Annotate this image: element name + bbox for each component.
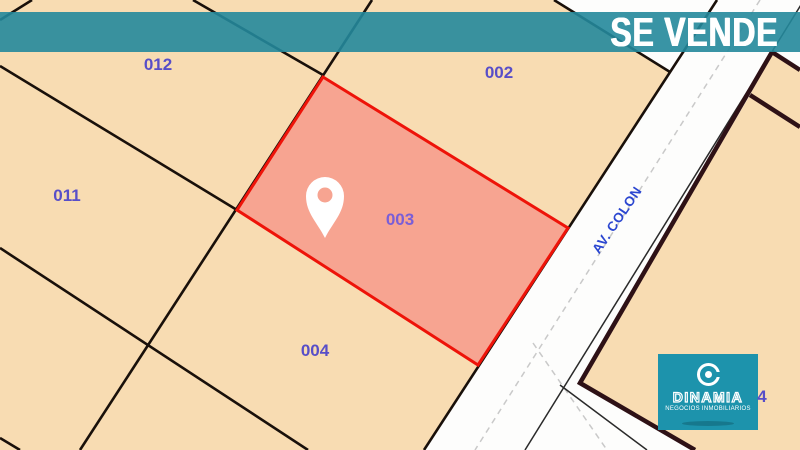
parcel-label-4: 4 [757, 387, 766, 407]
parcel-label-011: 011 [53, 186, 80, 206]
listing-map: SE VENDE 012 002 011 003 004 AV. COLON D… [0, 0, 800, 450]
se-vende-banner: SE VENDE [0, 12, 800, 52]
dinamia-eye-icon [697, 363, 720, 386]
logo-shadow [682, 421, 734, 426]
se-vende-label: SE VENDE [610, 12, 778, 52]
dinamia-logo: DINAMIA NEGOCIOS INMOBILIARIOS [658, 354, 758, 430]
logo-tagline: NEGOCIOS INMOBILIARIOS [665, 405, 751, 413]
parcel-label-003: 003 [386, 210, 414, 230]
parcel-label-012: 012 [144, 55, 172, 75]
parcel-label-004: 004 [301, 341, 329, 361]
parcel-label-002: 002 [485, 63, 513, 83]
logo-name: DINAMIA [673, 390, 743, 404]
